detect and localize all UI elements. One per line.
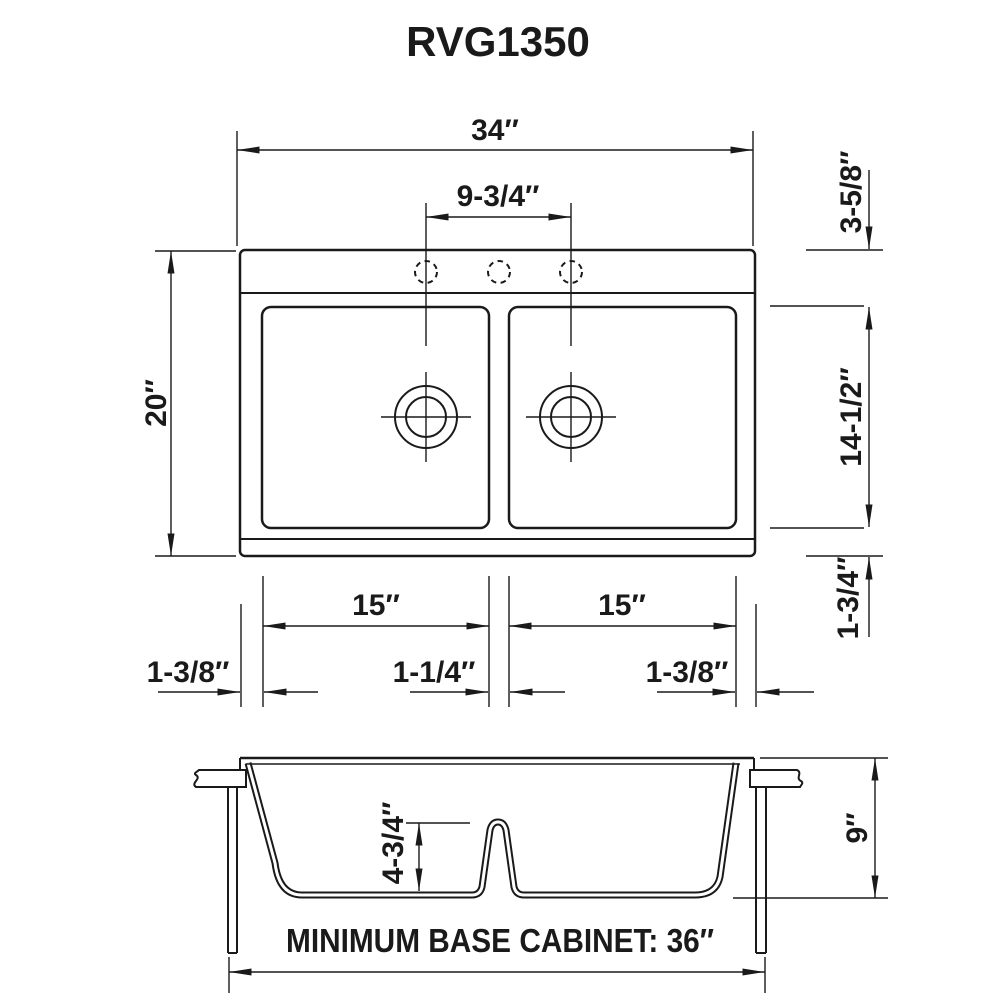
dim-label-left-bowl-width: 15″	[352, 589, 400, 622]
cabinet-wall-left	[228, 787, 237, 953]
cabinet-wall-right	[756, 787, 766, 953]
spec-sheet: RVG1350 34″	[0, 0, 1000, 1000]
top-view	[240, 203, 755, 556]
dim-faucet-spacing: 9-3/4″	[426, 180, 571, 217]
dim-label-right-bowl-width: 15″	[598, 589, 646, 622]
dim-label-front-rim: 1-3/4″	[832, 557, 865, 640]
right-drain	[526, 372, 616, 462]
dim-front-rim: 1-3/4″	[770, 528, 883, 639]
countertop-left	[194, 770, 246, 787]
bowl-profile	[248, 763, 736, 895]
dim-label-right-rim: 1-3/8″	[646, 656, 729, 689]
technical-drawing: RVG1350 34″	[0, 0, 1000, 1000]
dim-label-front-to-back: 20″	[140, 379, 173, 427]
dim-label-faucet-spacing: 9-3/4″	[457, 180, 540, 213]
dim-deck-depth: 3-5/8″	[770, 151, 883, 306]
dim-label-bowl-front-to-back: 14-1/2″	[835, 367, 868, 466]
dim-bowl-front-to-back: 14-1/2″	[835, 307, 869, 527]
dim-left-rim-width: 1-3/8″	[147, 656, 318, 692]
section-view: 4-3/4″ 9″ MINIMUM BASE CABINET: 36″	[194, 758, 888, 993]
dim-divider-height: 4-3/4″	[377, 802, 470, 891]
left-drain	[381, 372, 471, 462]
sink-outline-top-view	[240, 250, 755, 556]
dim-left-bowl-width: 15″	[263, 589, 489, 626]
dim-front-to-back: 20″	[140, 251, 236, 556]
dim-label-divider-height: 4-3/4″	[377, 802, 410, 885]
countertop-right	[750, 770, 802, 787]
dim-label-deck-depth: 3-5/8″	[835, 151, 868, 234]
dim-right-bowl-width: 15″	[509, 589, 736, 626]
drawing-title: RVG1350	[406, 18, 590, 65]
dim-label-overall-width: 34″	[471, 114, 519, 147]
dim-cabinet-width	[229, 957, 765, 993]
dim-label-divider: 1-1/4″	[393, 656, 476, 689]
dim-label-bowl-depth: 9″	[841, 812, 874, 843]
dim-right-rim-width: 1-3/8″	[646, 656, 814, 692]
faucet-hole-center	[488, 261, 510, 283]
dim-divider-width: 1-1/4″	[393, 656, 565, 692]
cabinet-note: MINIMUM BASE CABINET: 36″	[286, 922, 714, 959]
dim-label-left-rim: 1-3/8″	[147, 656, 230, 689]
